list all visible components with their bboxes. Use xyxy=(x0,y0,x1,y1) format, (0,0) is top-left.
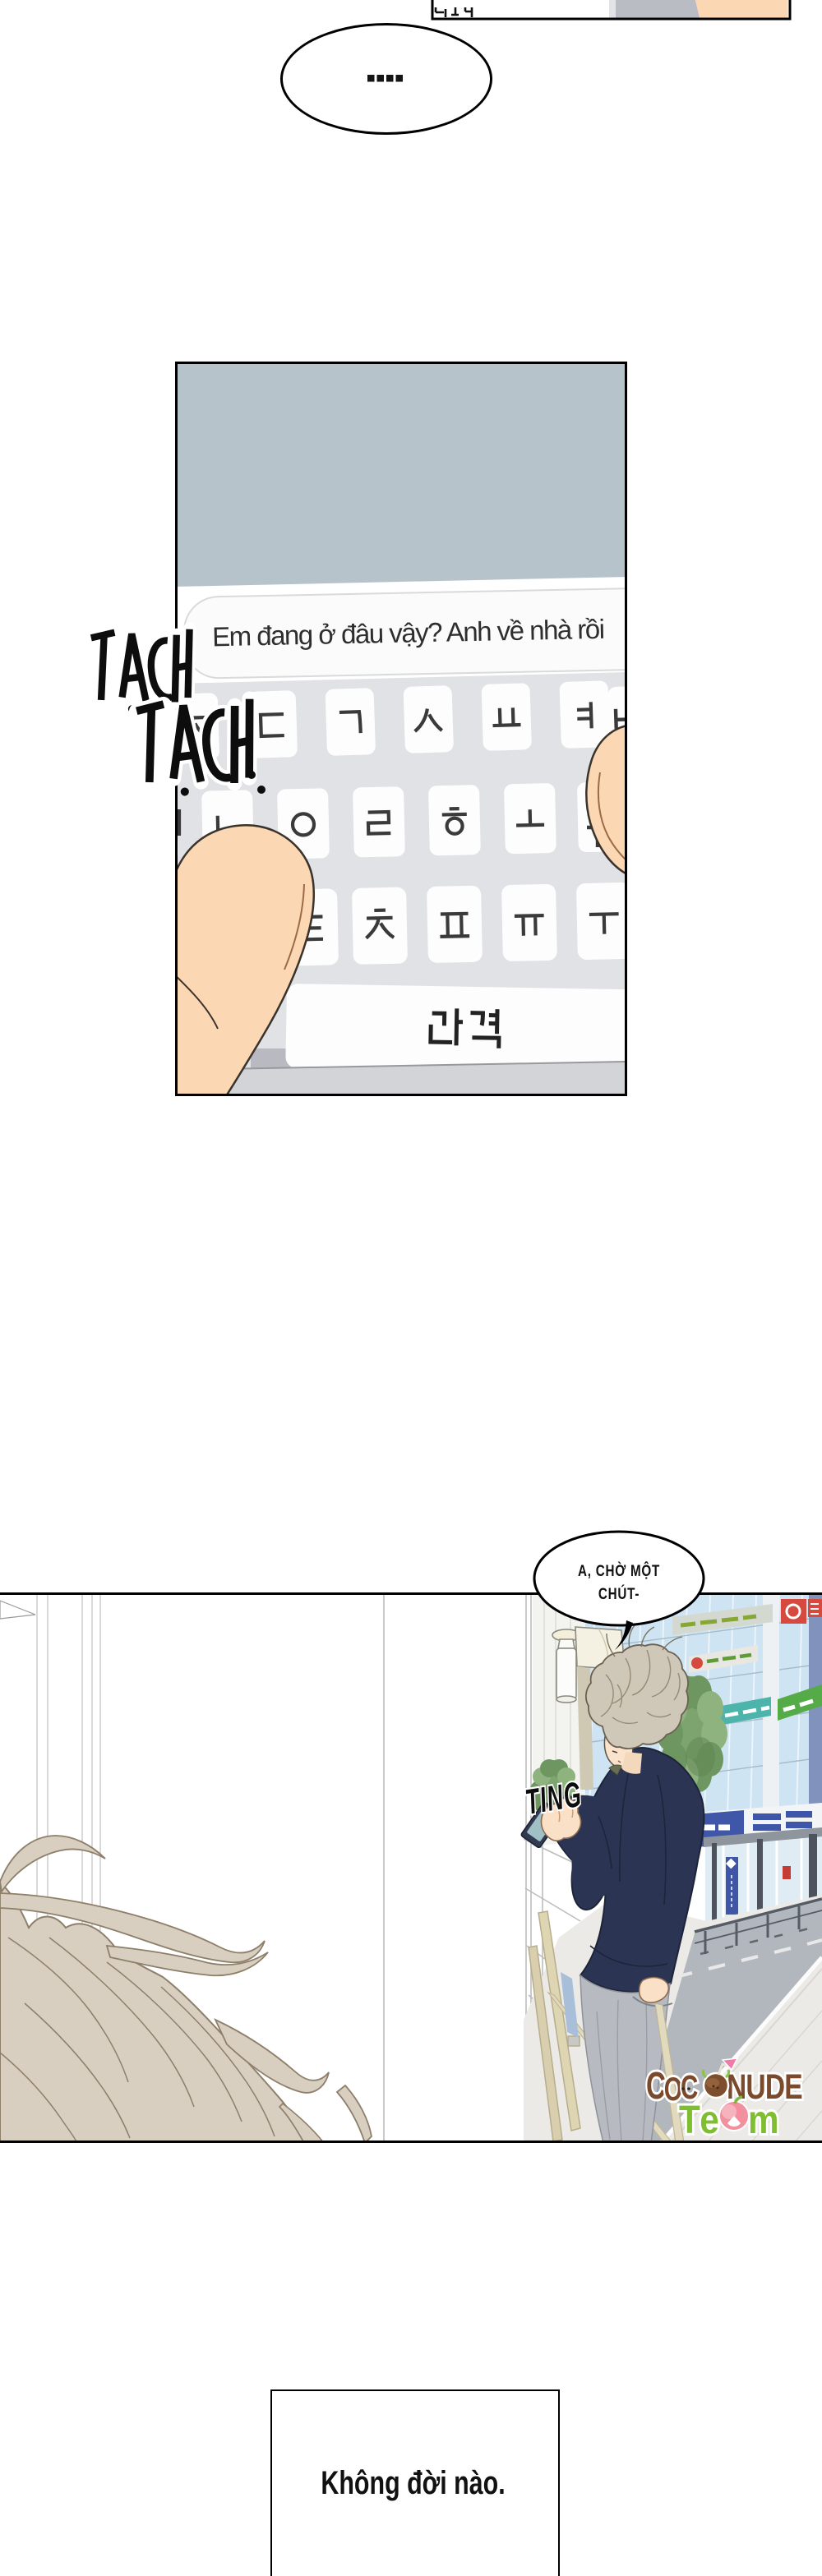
svg-text:Te: Te xyxy=(679,2097,721,2141)
svg-text:m: m xyxy=(748,2097,779,2141)
svg-text:A, CHỜ MỘT: A, CHỜ MỘT xyxy=(578,1560,660,1579)
svg-text:CHÚT-: CHÚT- xyxy=(598,1583,640,1602)
